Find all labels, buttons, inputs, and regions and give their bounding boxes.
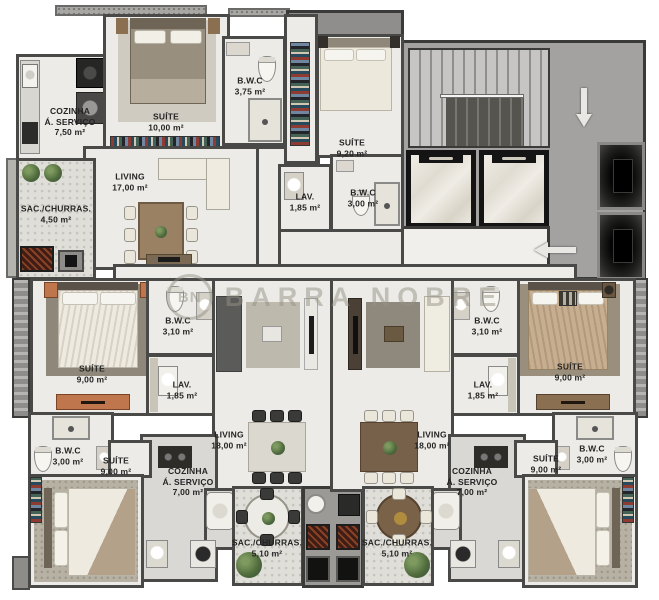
toilet-tank [259, 57, 275, 63]
dresser-handle [561, 401, 585, 404]
chair [270, 472, 284, 484]
shower [576, 416, 614, 440]
chair [364, 410, 378, 422]
chair [382, 410, 396, 422]
tv-console [304, 298, 318, 370]
arrow-stem [581, 88, 587, 114]
duct-shaft [597, 142, 645, 210]
laundry-sink [146, 540, 168, 568]
stair-lower-flight [446, 98, 524, 146]
nightstand [602, 282, 616, 298]
barbecue-grill [20, 246, 54, 272]
room-label-suite1-d: SUÍTE 9,00 m² [555, 361, 586, 382]
tiled-strip [508, 358, 516, 412]
room-label-living-c: LIVING 18,00 m² [211, 429, 247, 450]
kitchen-counter [474, 446, 508, 468]
nightstand [318, 36, 328, 48]
chair [124, 250, 136, 264]
cabinet-door [65, 255, 77, 267]
grill-box [336, 556, 360, 582]
arrow-head [534, 242, 548, 258]
sofa-chaise [206, 158, 230, 210]
washing-machine [450, 540, 476, 568]
pillow [134, 30, 166, 44]
chair [186, 228, 198, 242]
sofa [424, 296, 450, 372]
dresser-handle [81, 401, 105, 404]
bathroom-vanity [336, 160, 354, 172]
nightstand [44, 282, 58, 298]
room-label-sacada-d: SAC./CHURRAS. 5,10 m² [362, 537, 432, 558]
tv [309, 316, 314, 354]
chair [420, 510, 432, 524]
stove [22, 122, 38, 144]
chair [382, 472, 396, 484]
pillow [170, 30, 202, 44]
toilet-tank [167, 287, 183, 293]
facade-ledge [228, 8, 290, 17]
duct-shaft-inner [613, 159, 633, 193]
nightstand [208, 18, 220, 34]
table-centerpiece [262, 512, 275, 525]
room-label-bwc1-d: B.W.C 3,10 m² [472, 315, 503, 336]
room-label-lav-d: LAV. 1,85 m² [468, 379, 499, 400]
chair [252, 472, 266, 484]
balcony-counter [338, 494, 360, 516]
entrance-arrow-icon [576, 88, 592, 128]
grill-box [306, 556, 330, 582]
refrigerator [76, 58, 104, 88]
pillow [578, 292, 604, 305]
plant [22, 164, 40, 182]
room-label-cozinha-a: COZINHA Á. SERVIÇO 7,50 m² [45, 106, 96, 138]
tiled-strip [150, 358, 158, 412]
kitchen-counter [158, 446, 192, 468]
wardrobe [622, 477, 634, 523]
pillow [100, 292, 136, 305]
sofa [216, 296, 242, 372]
room-label-cozinha-c: COZINHA Á. SERVIÇO 7,00 m² [163, 466, 214, 498]
tv-console [348, 298, 362, 370]
pillow [54, 492, 68, 528]
arrow-stem [548, 247, 576, 253]
elevator-door-lens [502, 157, 526, 160]
laundry-sink [498, 540, 520, 568]
tv [158, 257, 180, 262]
shower [248, 98, 282, 142]
chair [366, 510, 378, 524]
bed [528, 488, 596, 576]
washing-machine [190, 540, 216, 568]
pillow [356, 49, 386, 61]
room-label-living-a: LIVING 17,00 m² [112, 171, 148, 192]
table-centerpiece [394, 512, 407, 525]
nightstand [390, 36, 400, 48]
room-label-bwc2-c: B.W.C 3,00 m² [53, 445, 84, 466]
elevator-door-lens [429, 157, 453, 160]
bed-headboard [528, 282, 608, 290]
shower-drain [592, 426, 598, 432]
entrance-arrow-icon [534, 242, 580, 258]
wardrobe [290, 42, 310, 146]
toilet-tank [615, 447, 631, 453]
table-centerpiece [271, 441, 285, 455]
bathroom-vanity [226, 42, 250, 56]
duct-shaft [597, 212, 645, 280]
arrow-head [576, 114, 592, 127]
balcony-cabinet [58, 250, 84, 272]
floor-plan: COZINHA Á. SERVIÇO 7,50 m² SUÍTE 10,00 m… [0, 0, 659, 600]
chair [288, 510, 300, 524]
bed-headboard [612, 488, 620, 568]
bed-headboard [320, 38, 392, 47]
barbecue-grill [336, 524, 360, 550]
room-label-cozinha-d: COZINHA Á. SERVIÇO 7,00 m² [447, 466, 498, 498]
chair [364, 472, 378, 484]
room-label-sacada-c: SAC./CHURRAS. 5,10 m² [232, 537, 302, 558]
room-label-suite2-c: SUÍTE 9,00 m² [101, 455, 132, 476]
chair [400, 410, 414, 422]
room-label-bwc2-d: B.W.C 3,00 m² [577, 443, 608, 464]
stair-handrail [440, 94, 524, 98]
bed [68, 488, 136, 576]
chair [252, 410, 266, 422]
pillow [596, 492, 610, 528]
room-label-living-d: LIVING 18,00 m² [414, 429, 450, 450]
pillow [324, 49, 354, 61]
pillow [54, 530, 68, 566]
chair [124, 228, 136, 242]
chair [392, 488, 406, 500]
room-label-suite2-d: SUÍTE 9,00 m² [531, 453, 562, 474]
bed-blanket [529, 489, 595, 575]
elevator [479, 150, 549, 228]
bed-sheet [131, 79, 205, 103]
chair [288, 472, 302, 484]
dresser [536, 394, 610, 410]
shower-drain [384, 203, 390, 209]
room-label-bwc-a: B.W.C 3,75 m² [235, 75, 266, 96]
facade-ledge [12, 278, 30, 418]
shower-drain [262, 119, 268, 125]
room-label-sacada-a: SAC./CHURRAS. 4,50 m² [21, 203, 91, 224]
dining-table [360, 422, 418, 472]
bed-headboard [58, 282, 138, 290]
toilet-tank [483, 287, 499, 293]
bed-headboard [44, 488, 52, 568]
room-label-bwc1-c: B.W.C 3,10 m² [163, 315, 194, 336]
chair [236, 510, 248, 524]
coffee-table [384, 326, 404, 342]
room-label-lav-c: LAV. 1,85 m² [167, 379, 198, 400]
dining-table [248, 422, 306, 472]
room-label-bwc-b: B.W.C 3,00 m² [348, 187, 379, 208]
dresser [56, 394, 130, 410]
tv [353, 316, 358, 354]
chair [400, 472, 414, 484]
room-label-suite1-c: SUÍTE 9,00 m² [77, 363, 108, 384]
chair [124, 206, 136, 220]
pillow [596, 530, 610, 566]
shower-drain [68, 426, 74, 432]
room-label-lav-b: LAV. 1,85 m² [290, 191, 321, 212]
elevator [406, 150, 476, 228]
pillow [559, 291, 577, 306]
room-label-suite-b: SUÍTE 9,20 m² [337, 137, 368, 158]
table-centerpiece [383, 441, 397, 455]
dining-table [138, 202, 184, 260]
wardrobe [30, 477, 42, 523]
chair [270, 410, 284, 422]
barbecue-grill [306, 524, 330, 550]
balcony-sink [306, 494, 326, 514]
pillow [62, 292, 98, 305]
chair [288, 410, 302, 422]
nightstand [116, 18, 128, 34]
toilet-tank [35, 447, 51, 453]
bed-blanket [69, 489, 135, 575]
coffee-table [262, 326, 282, 342]
table-centerpiece [155, 226, 167, 238]
kitchen-sink [22, 64, 38, 88]
bed-headboard [130, 18, 206, 28]
chair [186, 206, 198, 220]
pillow [532, 292, 558, 305]
room-label-suite-a: SUÍTE 10,00 m² [148, 111, 184, 132]
bathroom-vanity [452, 292, 470, 320]
shower [52, 416, 90, 440]
plant [44, 164, 62, 182]
duct-shaft-inner [613, 229, 633, 263]
chair [260, 488, 274, 500]
